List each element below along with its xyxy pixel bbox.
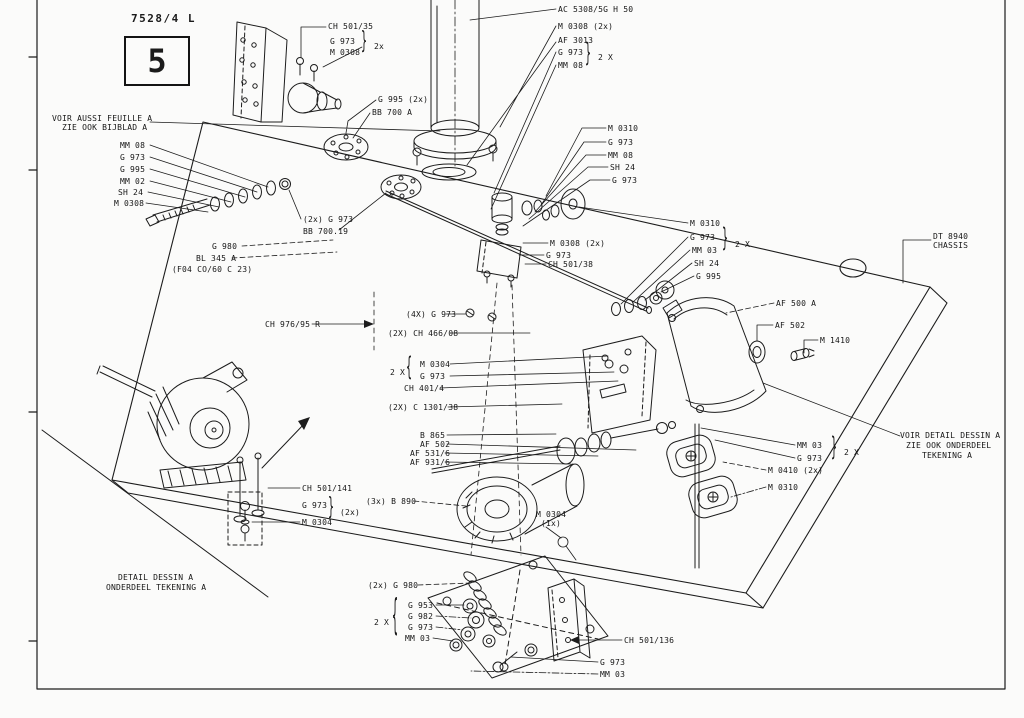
callout-g973-top: G 973 [558, 48, 583, 57]
callout-g973-valve: G 973 [546, 251, 571, 260]
callout-qty-top: 2 X [598, 53, 613, 62]
note-chassis-2: CHASSIS [933, 241, 968, 251]
callout-m0310-mid: M 0310 [690, 219, 720, 228]
diagram-linework [0, 0, 1024, 718]
brace-right: } [831, 434, 837, 463]
callout-g980-2x: (2x) G 980 [368, 581, 418, 590]
note-see-also-2: ZIE OOK BIJBLAD A [62, 123, 147, 133]
callout-g995-mid: G 995 [696, 272, 721, 281]
callout-mm02-l: MM 02 [120, 177, 145, 186]
bracket-assembly [233, 22, 341, 122]
callout-m0304-1xq: (1x) [541, 519, 561, 528]
callout-b865: B 865 [420, 431, 445, 440]
washers-bottom [450, 599, 537, 672]
callout-ch466-08: (2X) CH 466/08 [388, 329, 458, 338]
note-detail-caption-1: DETAIL DESSIN A [118, 573, 193, 583]
callout-ch401-4: CH 401/4 [404, 384, 444, 393]
callout-ac5308: AC 5308/5G H 50 [558, 5, 633, 14]
callout-bl345a: BL 345 A [196, 254, 236, 263]
callout-g973-m: G 973 [420, 372, 445, 381]
brace-m0304: { [406, 354, 412, 383]
callout-b890-3x: (3x) B 890 [366, 497, 416, 506]
callout-qty-tl: 2x [374, 42, 384, 51]
mount-bracket [583, 336, 656, 433]
callout-g973-det: G 973 [302, 501, 327, 510]
callout-m0310-r2: M 0310 [768, 483, 798, 492]
callout-g973-b2: G 973 [600, 658, 625, 667]
sheet-number-box: 5 [124, 36, 190, 86]
isolator-mounts [664, 424, 740, 568]
callout-g973-4x: (4X) G 973 [406, 310, 456, 319]
brace-mid: } [722, 225, 728, 254]
note-detail-caption-2: ONDERDEEL TEKENING A [106, 583, 206, 593]
callout-m0304-det: M 0304 [302, 518, 332, 527]
sheet-number: 5 [147, 42, 166, 80]
brace-top: } [585, 40, 591, 69]
callout-c1301-38: (2X) C 1301/38 [388, 403, 458, 412]
callout-qty-det: (2x) [340, 508, 360, 517]
callout-ch501-136: CH 501/136 [624, 636, 674, 645]
callout-m0308-valve: M 0308 (2x) [550, 239, 605, 248]
callout-qty-mid: 2 X [735, 240, 750, 249]
callout-m0308-tl: M 0308 [330, 48, 360, 57]
construction-lines [374, 0, 521, 555]
callout-m0304-1x: M 0304 [536, 510, 566, 519]
note-see-detail-1: VOIR DETAIL DESSIN A [900, 431, 1000, 441]
callout-mm08-r1: MM 08 [608, 151, 633, 160]
callout-g973-l: G 973 [120, 153, 145, 162]
callout-f04: (F04 CO/60 C 23) [172, 265, 252, 274]
callout-bb700a: BB 700 A [372, 108, 412, 117]
callout-ch501-141: CH 501/141 [302, 484, 352, 493]
callout-g973-r2: G 973 [797, 454, 822, 463]
callout-af500a: AF 500 A [776, 299, 816, 308]
callout-g973-mid: G 973 [690, 233, 715, 242]
callout-mm03-r: MM 03 [797, 441, 822, 450]
note-see-detail-2: ZIE OOK ONDERDEEL [906, 441, 991, 451]
callout-sh24-l: SH 24 [118, 188, 143, 197]
callout-g973-b: G 973 [408, 623, 433, 632]
brace-tl: } [361, 29, 367, 55]
brace-bottom: { [392, 595, 398, 641]
callout-g973-r1b: G 973 [612, 176, 637, 185]
callout-mm03-mid: MM 03 [692, 246, 717, 255]
callout-m0310-r1: M 0310 [608, 124, 638, 133]
callout-af531-6: AF 531/6 [410, 449, 450, 458]
note-see-detail-3: TEKENING A [922, 451, 972, 461]
callout-ch976-95r: CH 976/95 R [265, 320, 320, 329]
callout-af502-c: AF 502 [420, 440, 450, 449]
leader-lines [146, 9, 931, 674]
callout-mm03-b: MM 03 [405, 634, 430, 643]
callout-bb700-19: BB 700.19 [303, 227, 348, 236]
drawing-number: 7528/4 L [131, 12, 196, 25]
drawing-sheet: 7528/4 L 5 VOIR AUSSI FEUILLE A ZIE OOK … [0, 0, 1024, 718]
callout-m1410: M 1410 [820, 336, 850, 345]
channel-bracket [548, 579, 590, 661]
callout-m0308-top: M 0308 (2x) [558, 22, 613, 31]
callout-mm08-top: MM 08 [558, 61, 583, 70]
callout-qty-r: 2 X [844, 448, 859, 457]
callout-m0308-l: M 0308 [114, 199, 144, 208]
callout-g980: G 980 [212, 242, 237, 251]
callout-ch501-38: CH 501/38 [548, 260, 593, 269]
callout-m0410-2x: M 0410 (2x) [768, 466, 823, 475]
callout-qty-m0304: 2 X [390, 368, 405, 377]
flange-discs [324, 134, 421, 199]
callout-sh24-mid: SH 24 [694, 259, 719, 268]
callout-g973-2x: (2x) G 973 [303, 215, 353, 224]
callout-g995-l: G 995 [120, 165, 145, 174]
detail-drawing [42, 362, 310, 597]
callout-g982: G 982 [408, 612, 433, 621]
callout-qty-b: 2 X [374, 618, 389, 627]
callout-af502-r: AF 502 [775, 321, 805, 330]
callout-g995-disc: G 995 (2x) [378, 95, 428, 104]
callout-g973-r1: G 973 [608, 138, 633, 147]
callout-sh24-r1: SH 24 [610, 163, 635, 172]
callout-g953: G 953 [408, 601, 433, 610]
callout-mm03-b2: MM 03 [600, 670, 625, 679]
callout-g973-tl: G 973 [330, 37, 355, 46]
callout-af931-6: AF 931/6 [410, 458, 450, 467]
callout-mm08-l: MM 08 [120, 141, 145, 150]
strap [663, 298, 814, 413]
callout-m0304-mid: M 0304 [420, 360, 450, 369]
